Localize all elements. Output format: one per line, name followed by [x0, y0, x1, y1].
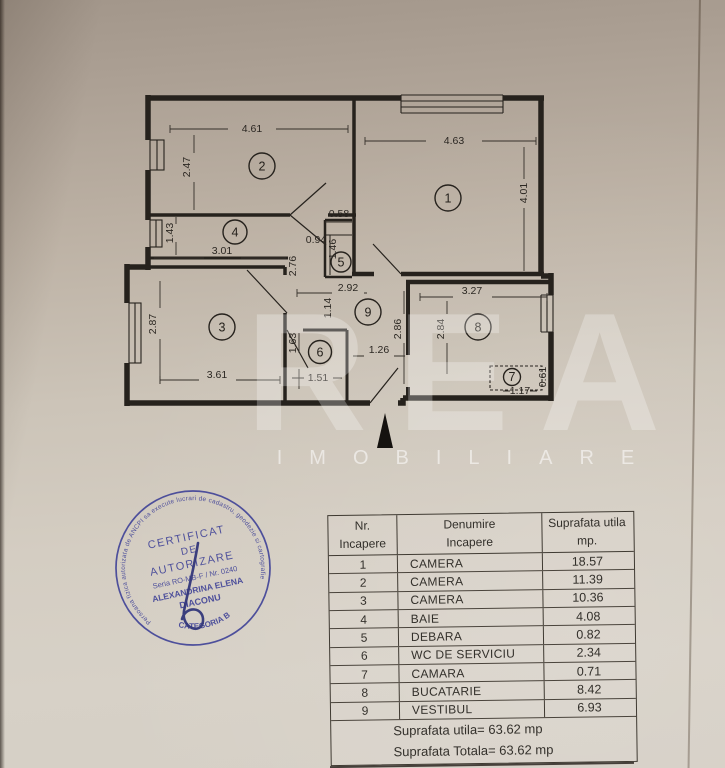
- row2-area: 11.39: [543, 570, 632, 589]
- row3-nr: 3: [329, 592, 398, 610]
- watermark-logo: REA: [222, 288, 714, 463]
- row3-name: CAMERA: [398, 590, 543, 609]
- dim-room5-width: 0.58: [329, 208, 350, 220]
- header-denumire: Denumire Incapere: [397, 513, 543, 554]
- row6-nr: 6: [330, 647, 399, 665]
- row2-name: CAMERA: [398, 571, 543, 590]
- header-nr-line2: Incapere: [339, 535, 386, 553]
- dim-room1-height: 4.01: [518, 183, 530, 204]
- row1-area: 18.57: [543, 552, 632, 571]
- total-area: Suprafata Totala= 63.62 mp: [393, 739, 636, 763]
- dim-room4-width: 3.01: [212, 245, 233, 257]
- row5-nr: 5: [330, 629, 399, 647]
- row4-name: BAIE: [399, 608, 544, 627]
- paper-left-shadow: [0, 0, 5, 768]
- room-label-2: 2: [259, 160, 266, 174]
- row1-nr: 1: [329, 555, 398, 573]
- header-nr-line1: Nr.: [355, 518, 371, 536]
- row5-area: 0.82: [544, 625, 633, 644]
- dim-room2-height: 2.47: [181, 157, 193, 178]
- room-label-1: 1: [445, 192, 452, 206]
- row8-area: 8.42: [545, 680, 634, 699]
- dim-corridor-094: 0.94: [306, 234, 327, 246]
- watermark-subtitle: IMOBILIARE: [226, 447, 712, 470]
- dim-room3-height: 2.87: [147, 314, 159, 335]
- header-suprafata-line1: Suprafata utila: [548, 514, 626, 532]
- table-header-row: Nr. Incapere Denumire Incapere Suprafata…: [328, 512, 634, 556]
- dim-room1-width: 4.63: [444, 135, 465, 147]
- room-label-4: 4: [232, 226, 239, 240]
- row6-area: 2.34: [544, 644, 633, 663]
- row8-name: BUCATARIE: [400, 682, 545, 701]
- row9-nr: 9: [331, 702, 400, 720]
- row3-area: 10.36: [543, 589, 632, 608]
- scanned-floor-plan-page: 1 2 3 4 5 6 7 8 9 4.61 2.47 4.63 4.01 3.…: [0, 0, 725, 768]
- row2-nr: 2: [329, 574, 398, 592]
- authorization-stamp: Persoana fizica autorizata de ANCPI sa e…: [110, 483, 295, 663]
- header-denumire-line2: Incapere: [446, 533, 493, 551]
- header-denumire-line1: Denumire: [443, 516, 495, 534]
- table-footer: Suprafata utila= 63.62 mp Suprafata Tota…: [331, 717, 637, 765]
- row7-name: CAMARA: [399, 663, 544, 682]
- row4-area: 4.08: [544, 607, 633, 626]
- dim-corridor-276: 2.76: [287, 256, 299, 277]
- header-nr: Nr. Incapere: [328, 515, 398, 555]
- dim-room5-height: 1.46: [327, 239, 339, 260]
- row1-name: CAMERA: [398, 553, 543, 572]
- dim-room4-height: 1.43: [164, 223, 176, 244]
- row9-name: VESTIBUL: [400, 700, 545, 719]
- row6-name: WC DE SERVICIU: [399, 645, 544, 664]
- stamp-outer-circle: [110, 483, 284, 659]
- row4-nr: 4: [330, 610, 399, 628]
- header-suprafata-line2: mp.: [577, 532, 597, 550]
- header-suprafata: Suprafata utila mp.: [542, 512, 632, 552]
- dim-room2-width: 4.61: [242, 123, 263, 135]
- row7-area: 0.71: [544, 662, 633, 681]
- row5-name: DEBARA: [399, 627, 544, 646]
- row9-area: 6.93: [545, 699, 634, 718]
- window-top: [401, 95, 503, 113]
- row8-nr: 8: [331, 684, 400, 702]
- room-area-table: Nr. Incapere Denumire Incapere Suprafata…: [327, 511, 637, 766]
- row7-nr: 7: [330, 665, 399, 683]
